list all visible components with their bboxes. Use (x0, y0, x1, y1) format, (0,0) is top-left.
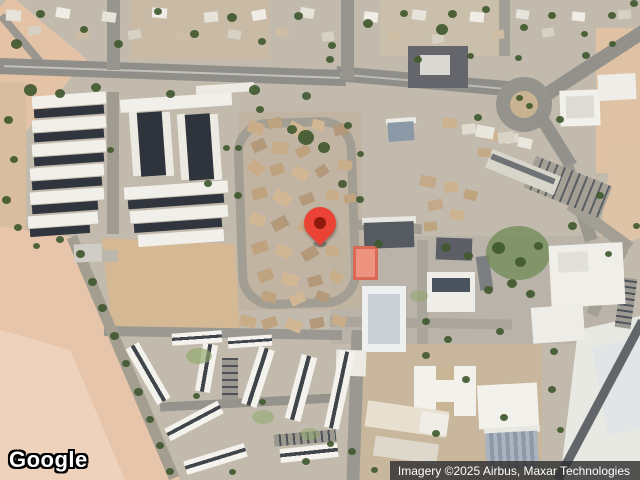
parking-bottom-1 (222, 358, 238, 400)
apt-row (120, 92, 233, 113)
lawn-small (300, 428, 320, 440)
pin-dot-icon (314, 217, 326, 229)
tree (515, 55, 522, 61)
tree (318, 142, 330, 153)
google-logo[interactable]: Google (9, 447, 88, 473)
map-viewport: Google Imagery ©2025 Airbus, Maxar Techn… (0, 0, 640, 480)
tree (134, 388, 143, 396)
tree (400, 10, 408, 17)
small-building (309, 317, 325, 330)
tree (204, 180, 212, 187)
tree (432, 430, 440, 437)
tree (258, 38, 266, 45)
tree (414, 56, 422, 63)
tree (444, 336, 452, 343)
small-building (618, 9, 632, 19)
apt-bar (183, 443, 247, 475)
tree (356, 196, 364, 203)
tree (298, 130, 314, 145)
apt-bar (172, 330, 223, 345)
tree (422, 352, 430, 359)
building-blue-north (387, 121, 414, 142)
small-building (462, 123, 477, 134)
tree (223, 145, 230, 151)
tree (98, 304, 107, 312)
tree (33, 243, 40, 249)
small-building (101, 11, 116, 23)
tree (596, 192, 604, 199)
tree (515, 257, 526, 267)
tree (357, 151, 364, 157)
road-north-2 (341, 0, 354, 80)
small-building (419, 174, 437, 188)
tree (249, 85, 260, 95)
tree (608, 12, 616, 19)
tree (156, 442, 164, 449)
tree (2, 196, 11, 204)
tree (526, 103, 533, 109)
tree (88, 278, 97, 286)
small-building (470, 11, 485, 22)
tree (24, 84, 37, 96)
small-building (321, 31, 334, 42)
tree (327, 441, 334, 447)
tree (166, 468, 174, 475)
tree (550, 348, 558, 355)
tree (328, 42, 336, 49)
tree (302, 458, 310, 465)
building-on-lot (420, 55, 450, 75)
road-complex-middle (107, 92, 119, 234)
apt-bar (285, 354, 318, 422)
tree (464, 252, 473, 260)
small-building (478, 147, 492, 157)
road-north-1 (107, 0, 120, 70)
tree (56, 236, 64, 243)
building-store-roof (566, 96, 595, 119)
small-building (441, 117, 457, 129)
tree (605, 251, 612, 257)
tree (496, 328, 504, 335)
tree (633, 223, 640, 229)
tree (363, 19, 373, 28)
tree (507, 279, 517, 288)
road-north-3 (499, 0, 510, 56)
building-E (477, 382, 539, 429)
tree (500, 414, 508, 421)
small-building (276, 27, 290, 37)
tree (344, 122, 352, 129)
tree (556, 116, 564, 123)
tree (534, 242, 543, 250)
tree (227, 13, 237, 22)
tree (76, 250, 85, 258)
small-building (239, 314, 257, 329)
tree (107, 147, 114, 153)
tree (482, 6, 490, 13)
small-building (475, 125, 495, 140)
tree (348, 448, 356, 455)
building-dark-roof (364, 221, 415, 249)
small-building (427, 199, 444, 212)
tree (259, 399, 266, 405)
tree (609, 41, 616, 47)
small-building (424, 221, 438, 231)
tree (36, 10, 45, 18)
small-building (517, 137, 533, 150)
lawn-small (410, 290, 428, 302)
building-C (531, 304, 585, 344)
tree (436, 24, 448, 35)
small-building (541, 27, 554, 38)
small-building (443, 181, 458, 193)
small-building (6, 9, 22, 21)
apt-bar (228, 334, 273, 348)
lawn-small (252, 410, 274, 424)
tree (302, 92, 311, 100)
tree (229, 469, 236, 475)
small-building (411, 9, 426, 21)
building-B-roof (432, 278, 470, 292)
small-building (271, 141, 289, 156)
tree (55, 89, 65, 98)
tree (110, 332, 119, 340)
road-dirt-south (104, 326, 342, 340)
tree (166, 90, 175, 98)
small-building (55, 7, 71, 19)
tree (548, 12, 556, 19)
small-building (27, 25, 41, 36)
tree (422, 318, 430, 325)
imagery-attribution: Imagery ©2025 Airbus, Maxar Technologies (390, 461, 640, 480)
tree (190, 30, 199, 38)
tree (474, 114, 482, 121)
tree (91, 83, 101, 92)
tree (122, 360, 130, 367)
tennis-court (356, 249, 375, 277)
tree (294, 12, 303, 20)
small-building (515, 9, 529, 20)
building-school-2 (102, 250, 118, 263)
small-building (497, 131, 514, 144)
small-building (204, 11, 219, 22)
tree (557, 427, 564, 433)
ground-patch-top-tan (130, 0, 270, 60)
tree (526, 290, 535, 298)
small-building (492, 29, 505, 39)
small-building (388, 31, 402, 41)
tree (10, 156, 18, 163)
tree (14, 224, 22, 231)
tree (374, 240, 383, 248)
lawn-small (186, 348, 212, 364)
tree (582, 52, 590, 59)
building-H-notch-top (436, 366, 454, 380)
tree (568, 222, 577, 230)
tree (448, 10, 457, 18)
tree (146, 416, 154, 423)
tree (4, 116, 13, 124)
tree (326, 56, 334, 63)
tree (11, 39, 22, 49)
tree (234, 192, 242, 199)
tree (371, 467, 378, 473)
building-northeast (597, 73, 636, 101)
small-building (463, 188, 478, 201)
tree (516, 95, 523, 101)
tree (581, 31, 588, 37)
small-building (449, 209, 464, 221)
tree (441, 243, 451, 252)
tree (235, 145, 242, 151)
tree (154, 8, 162, 15)
tree (520, 24, 528, 31)
map-pin[interactable] (301, 204, 339, 248)
tree (484, 286, 493, 294)
tree (193, 393, 200, 399)
roundabout-island (510, 91, 538, 118)
tree (462, 376, 470, 383)
building-A-roof (368, 294, 400, 344)
building-D-detail (557, 251, 588, 273)
tree (80, 26, 88, 33)
small-building (227, 29, 241, 40)
tree (467, 53, 474, 59)
tree (256, 106, 264, 113)
tree (114, 40, 123, 48)
tree (630, 0, 638, 7)
tree (548, 386, 556, 393)
tree (287, 125, 297, 134)
imagery-attribution-text: Imagery ©2025 Airbus, Maxar Technologies (398, 464, 630, 478)
tree (492, 242, 505, 254)
tree (338, 180, 347, 188)
small-building (572, 11, 586, 21)
